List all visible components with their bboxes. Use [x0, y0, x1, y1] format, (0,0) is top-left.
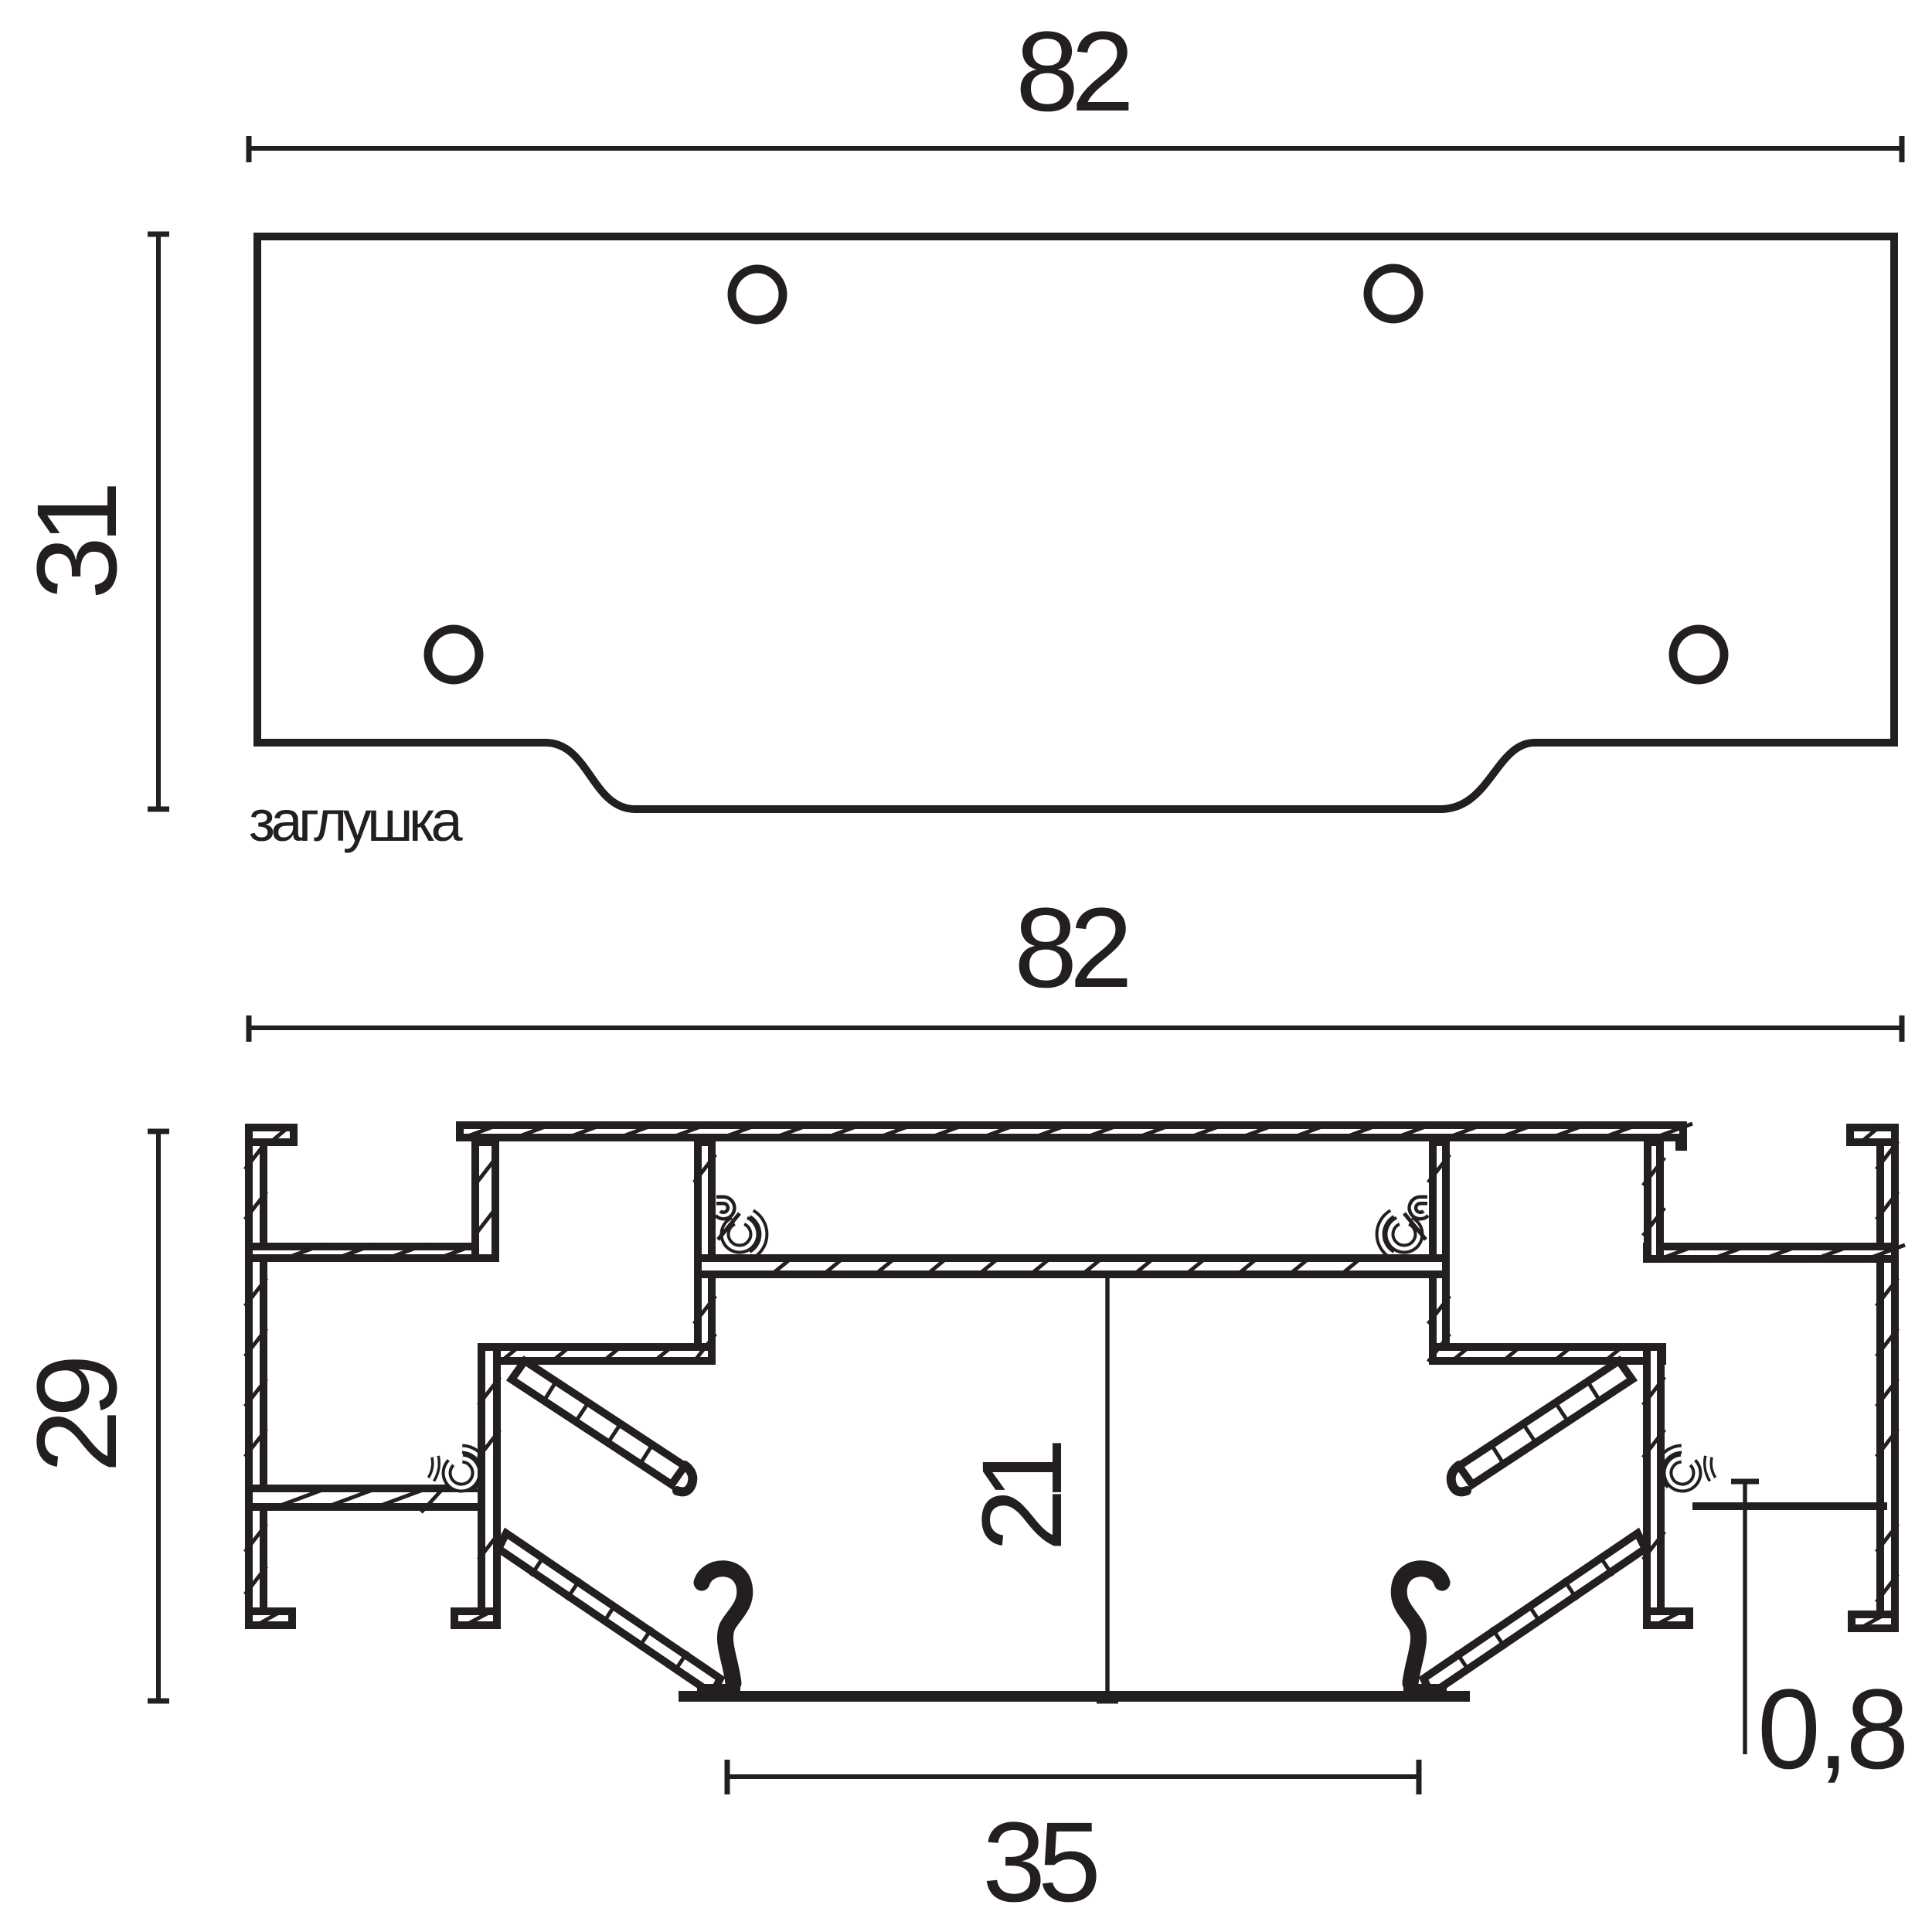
svg-text:31: 31: [14, 486, 141, 600]
svg-text:82: 82: [1015, 9, 1129, 135]
svg-text:21: 21: [959, 1443, 1086, 1552]
svg-text:0,8: 0,8: [1757, 1666, 1906, 1793]
svg-text:82: 82: [1014, 885, 1128, 1012]
svg-text:29: 29: [14, 1359, 141, 1473]
svg-text:35: 35: [982, 1799, 1097, 1926]
svg-text:заглушка: заглушка: [249, 789, 463, 853]
